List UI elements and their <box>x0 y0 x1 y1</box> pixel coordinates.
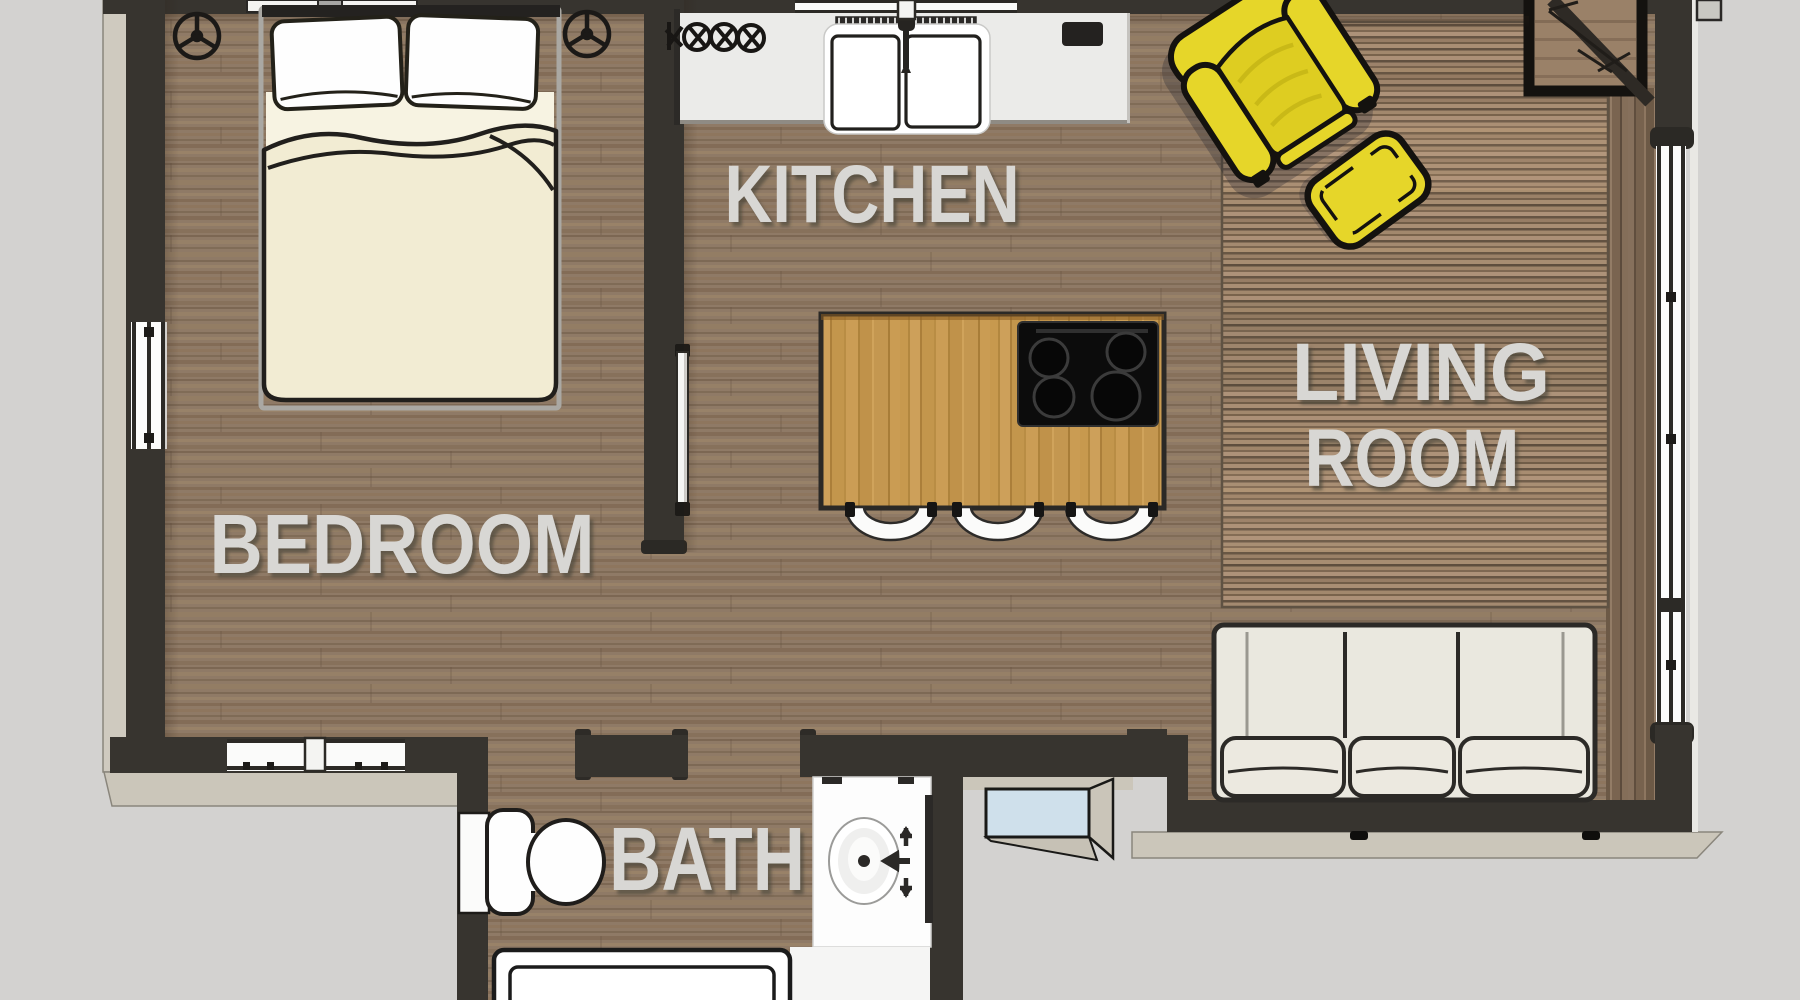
svg-text:LIVING: LIVING <box>1292 327 1550 418</box>
svg-text:BATH: BATH <box>609 810 805 910</box>
svg-text:BEDROOM: BEDROOM <box>210 497 595 591</box>
svg-text:ROOM: ROOM <box>1305 413 1520 504</box>
svg-text:KITCHEN: KITCHEN <box>725 149 1020 240</box>
